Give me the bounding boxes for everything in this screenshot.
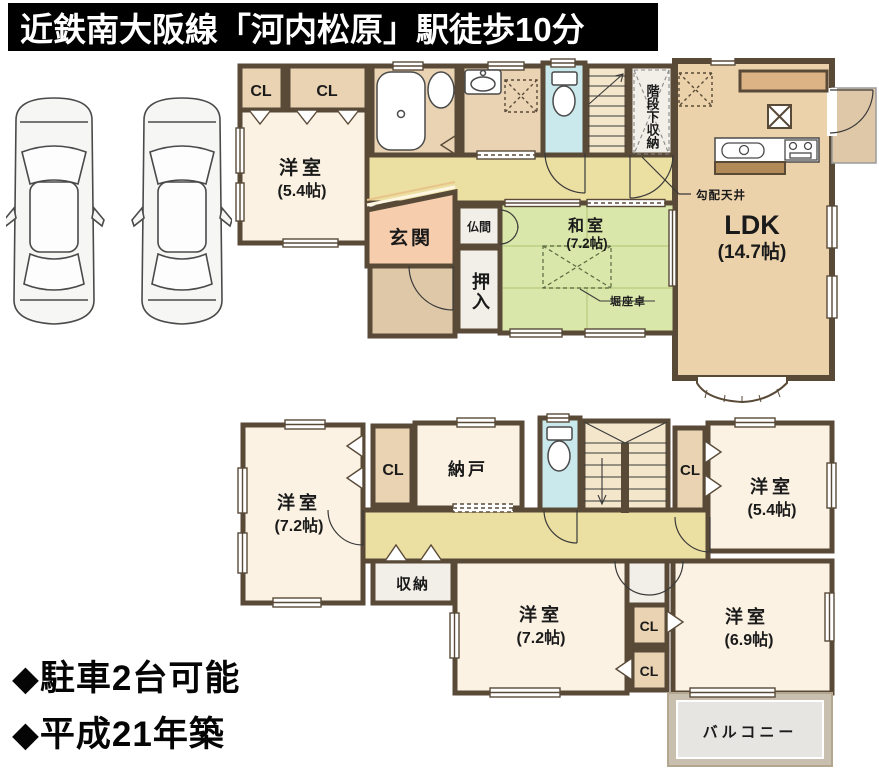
label-ldk-size-1f: (14.7帖) <box>718 240 787 263</box>
footer-parking: ◆駐車2台可能 <box>12 650 240 701</box>
porch-entry-1f <box>370 266 455 336</box>
label-yoshitsu69se-2f: 洋室 <box>725 606 769 627</box>
car-icon <box>132 98 232 324</box>
label-nando-2f: 納戸 <box>448 459 488 479</box>
stairs-1f <box>587 66 627 156</box>
label-yoshitsu72s-size-2f: (7.2帖) <box>517 628 566 647</box>
label-washitsu-size-1f: (7.2帖) <box>566 235 607 251</box>
label-washitsu-1f: 和室 <box>568 216 606 235</box>
label-oshiire-1f: 押入 <box>459 252 501 332</box>
label-clne-2f: CL <box>680 462 700 479</box>
floor1-plan: CL CL 洋室 (5.4帖) 玄関 仏間 和室 (7.2帖) LDK (14.… <box>235 58 879 405</box>
kitchen-upper-counter <box>740 71 827 91</box>
label-yoshitsu54-1f: 洋室 <box>279 156 325 179</box>
label-cls2-2f: CL <box>640 663 659 679</box>
hallway-2f <box>363 510 708 561</box>
room-yoshitsu72s-2f <box>455 561 627 693</box>
label-yoshitsu72nw-size-2f: (7.2帖) <box>275 516 324 535</box>
label-cl1-1f: CL <box>250 83 272 100</box>
vestibule-2f <box>627 561 667 605</box>
room-yoshitsu72nw-2f <box>243 425 363 603</box>
label-cls1-2f: CL <box>640 618 659 634</box>
label-balcony: バルコニー <box>703 724 798 741</box>
toilet-1f <box>552 72 577 116</box>
car-icon <box>6 98 104 324</box>
toilet-2f <box>547 427 572 471</box>
page-title: 近鉄南大阪線「河内松原」駅徒歩10分 <box>8 3 585 51</box>
floor2-plan: 洋室 (7.2帖) CL 納戸 CL 洋室 (5.4帖) 収納 洋室 (7.2帖… <box>235 413 879 768</box>
kitchen-lower-cabinet <box>715 162 785 174</box>
label-yoshitsu69se-size-2f: (6.9帖) <box>725 630 774 649</box>
label-cl2-1f: CL <box>316 83 338 100</box>
label-yoshitsu54ne-size-2f: (5.4帖) <box>748 500 797 519</box>
label-yoshitsu72nw-2f: 洋室 <box>277 492 321 513</box>
label-butsuma-1f: 仏間 <box>467 220 491 234</box>
label-clnw-2f: CL <box>382 462 404 479</box>
header-banner: 近鉄南大阪線「河内松原」駅徒歩10分 <box>8 3 658 51</box>
label-kobai-tenjo: 勾配天井 <box>696 188 746 202</box>
parking-cars <box>6 88 232 338</box>
label-yoshitsu72s-2f: 洋室 <box>519 604 563 625</box>
flyer: 近鉄南大阪線「河内松原」駅徒歩10分 <box>0 0 879 768</box>
label-genkan-1f: 玄関 <box>389 226 433 249</box>
room-yoshitsu69se-2f <box>673 561 832 693</box>
label-ldk-1f: LDK <box>724 210 780 240</box>
label-yoshitsu54ne-2f: 洋室 <box>750 476 794 497</box>
label-yoshitsu54-size-1f: (5.4帖) <box>278 181 327 200</box>
range-hood-box <box>768 105 791 128</box>
label-understairs-storage-1f: 階段下収納 <box>631 72 673 160</box>
washbasin <box>465 70 501 94</box>
label-shuno-2f: 収納 <box>396 575 430 593</box>
footer-built-year: ◆平成21年築 <box>12 706 225 757</box>
